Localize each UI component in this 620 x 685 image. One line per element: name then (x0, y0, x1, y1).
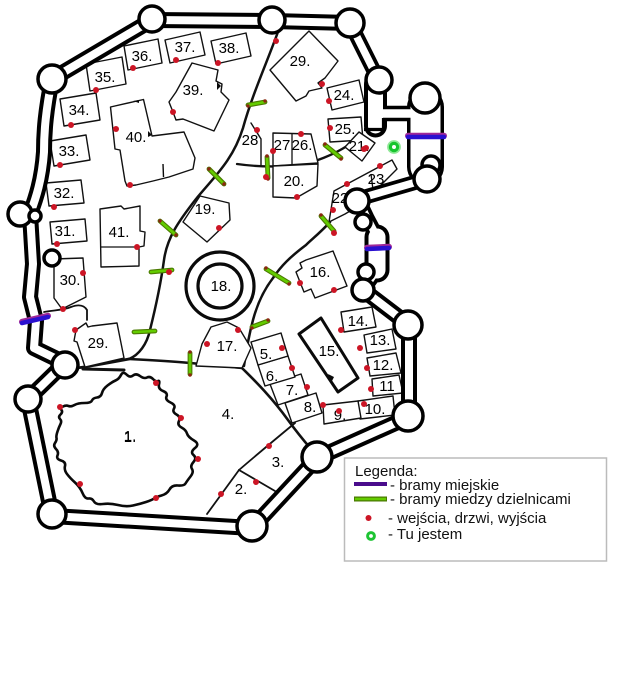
svg-text:4.: 4. (222, 406, 235, 423)
svg-text:1.: 1. (124, 429, 137, 446)
svg-text:- bramy miedzy dzielnicami: - bramy miedzy dzielnicami (390, 491, 571, 508)
svg-text:41.: 41. (109, 224, 130, 241)
svg-text:26.: 26. (292, 137, 313, 154)
svg-text:12.: 12. (373, 357, 394, 374)
svg-text:35.: 35. (95, 69, 116, 86)
svg-text:19.: 19. (195, 201, 216, 218)
svg-text:8.: 8. (304, 399, 317, 416)
svg-text:39.: 39. (183, 82, 204, 99)
svg-text:34.: 34. (69, 102, 90, 119)
svg-text:36.: 36. (132, 48, 153, 65)
svg-text:30.: 30. (60, 272, 81, 289)
svg-text:32.: 32. (54, 185, 75, 202)
svg-text:40.: 40. (126, 129, 147, 146)
svg-text:16.: 16. (310, 264, 331, 281)
svg-text:14.: 14. (348, 313, 369, 330)
svg-text:6.: 6. (266, 368, 279, 385)
svg-text:28: 28 (242, 132, 259, 149)
svg-text:- Tu jestem: - Tu jestem (388, 526, 462, 543)
svg-text:20.: 20. (284, 173, 305, 190)
svg-text:31.: 31. (55, 223, 76, 240)
svg-text:29.: 29. (290, 53, 311, 70)
svg-text:37.: 37. (175, 39, 196, 56)
svg-text:33.: 33. (59, 143, 80, 160)
svg-text:13.: 13. (370, 332, 391, 349)
svg-text:10.: 10. (365, 401, 386, 418)
svg-text:38.: 38. (219, 40, 240, 57)
svg-text:18.: 18. (211, 278, 232, 295)
svg-text:25.: 25. (335, 121, 356, 138)
svg-text:7.: 7. (286, 382, 299, 399)
svg-text:29.: 29. (88, 335, 109, 352)
svg-text:24.: 24. (334, 87, 355, 104)
svg-text:11: 11 (379, 378, 395, 395)
svg-text:5.: 5. (260, 346, 273, 363)
svg-text:- wejścia, drzwi, wyjścia: - wejścia, drzwi, wyjścia (388, 510, 547, 527)
svg-text:3.: 3. (272, 454, 285, 471)
svg-text:2.: 2. (235, 481, 248, 498)
svg-text:15.: 15. (319, 343, 340, 360)
svg-text:27: 27 (274, 137, 291, 154)
svg-text:17.: 17. (217, 338, 238, 355)
